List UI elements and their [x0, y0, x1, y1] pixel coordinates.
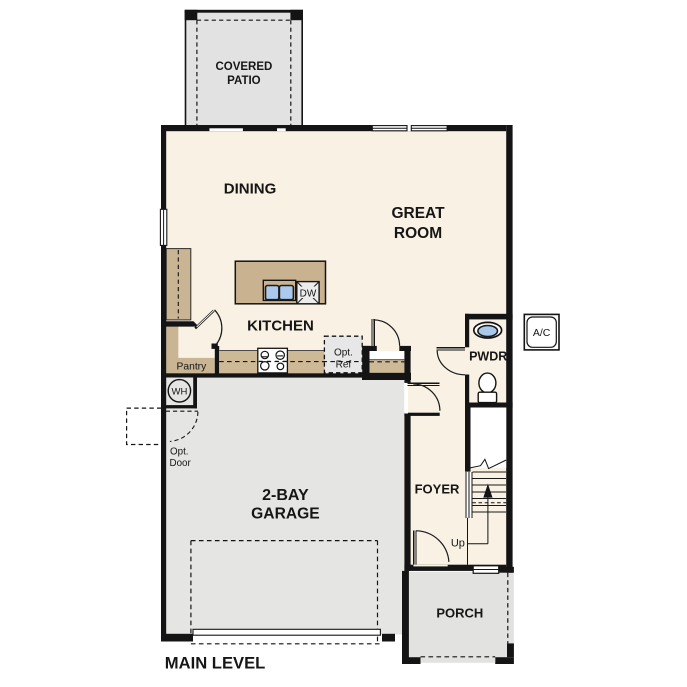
svg-text:GREAT: GREAT [391, 205, 445, 222]
svg-text:DW: DW [300, 289, 317, 300]
svg-text:KITCHEN: KITCHEN [247, 317, 314, 334]
svg-text:Up: Up [451, 538, 465, 550]
svg-text:ROOM: ROOM [394, 225, 442, 242]
svg-text:Opt.: Opt. [170, 447, 189, 458]
svg-text:PORCH: PORCH [436, 606, 483, 621]
svg-text:COVERED: COVERED [215, 61, 272, 73]
svg-text:Door: Door [170, 458, 192, 469]
svg-text:2-BAY: 2-BAY [262, 487, 309, 504]
svg-text:PATIO: PATIO [227, 75, 260, 87]
svg-text:Pantry: Pantry [177, 362, 208, 373]
svg-text:DINING: DINING [224, 180, 277, 197]
svg-text:Opt.: Opt. [334, 347, 353, 358]
svg-text:WH: WH [171, 386, 187, 397]
svg-text:PWDR: PWDR [469, 349, 507, 363]
svg-text:GARAGE: GARAGE [251, 505, 319, 522]
svg-text:Ref: Ref [336, 359, 352, 370]
svg-text:FOYER: FOYER [415, 482, 460, 497]
svg-text:MAIN LEVEL: MAIN LEVEL [165, 654, 265, 673]
svg-text:A/C: A/C [533, 327, 551, 339]
